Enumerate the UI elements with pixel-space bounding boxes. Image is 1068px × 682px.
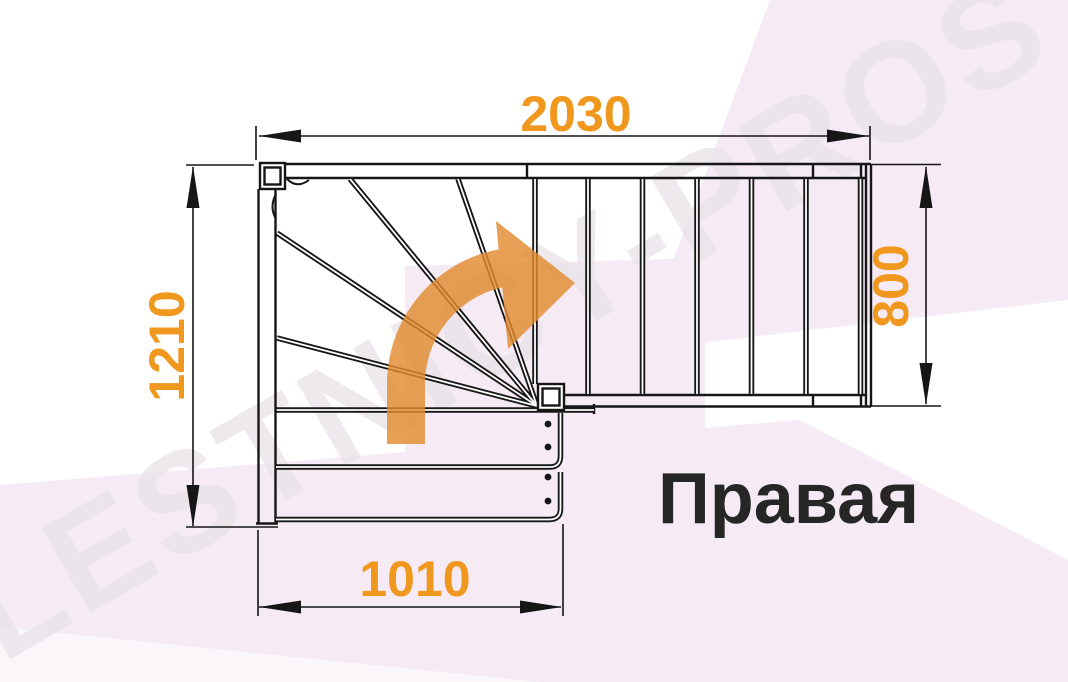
arrowhead xyxy=(259,130,301,143)
arrowhead xyxy=(187,166,200,208)
dimension-top-width: 2030 xyxy=(520,86,631,142)
staircase-plan-svg: LESTNICY-PROSTO.RU xyxy=(0,0,1068,682)
screw-dot xyxy=(545,444,552,451)
screw-dot xyxy=(545,474,552,481)
dimension-right-depth: 800 xyxy=(863,244,919,327)
plan-direction-label: Правая xyxy=(658,459,919,539)
screw-dot xyxy=(545,421,552,428)
dimension-bottom-width: 1010 xyxy=(359,551,470,607)
staircase-plan-page: LESTNICY-PROSTO.RU xyxy=(0,0,1068,682)
screw-dot xyxy=(545,498,552,505)
handrail-curl-top xyxy=(287,179,309,184)
dimension-left-height: 1210 xyxy=(139,290,195,401)
top-left-newel-post-inner xyxy=(265,168,281,185)
bottom-stringer-joint-ticks xyxy=(813,396,861,406)
arrowhead xyxy=(920,363,933,405)
center-newel-post-inner xyxy=(543,389,560,406)
